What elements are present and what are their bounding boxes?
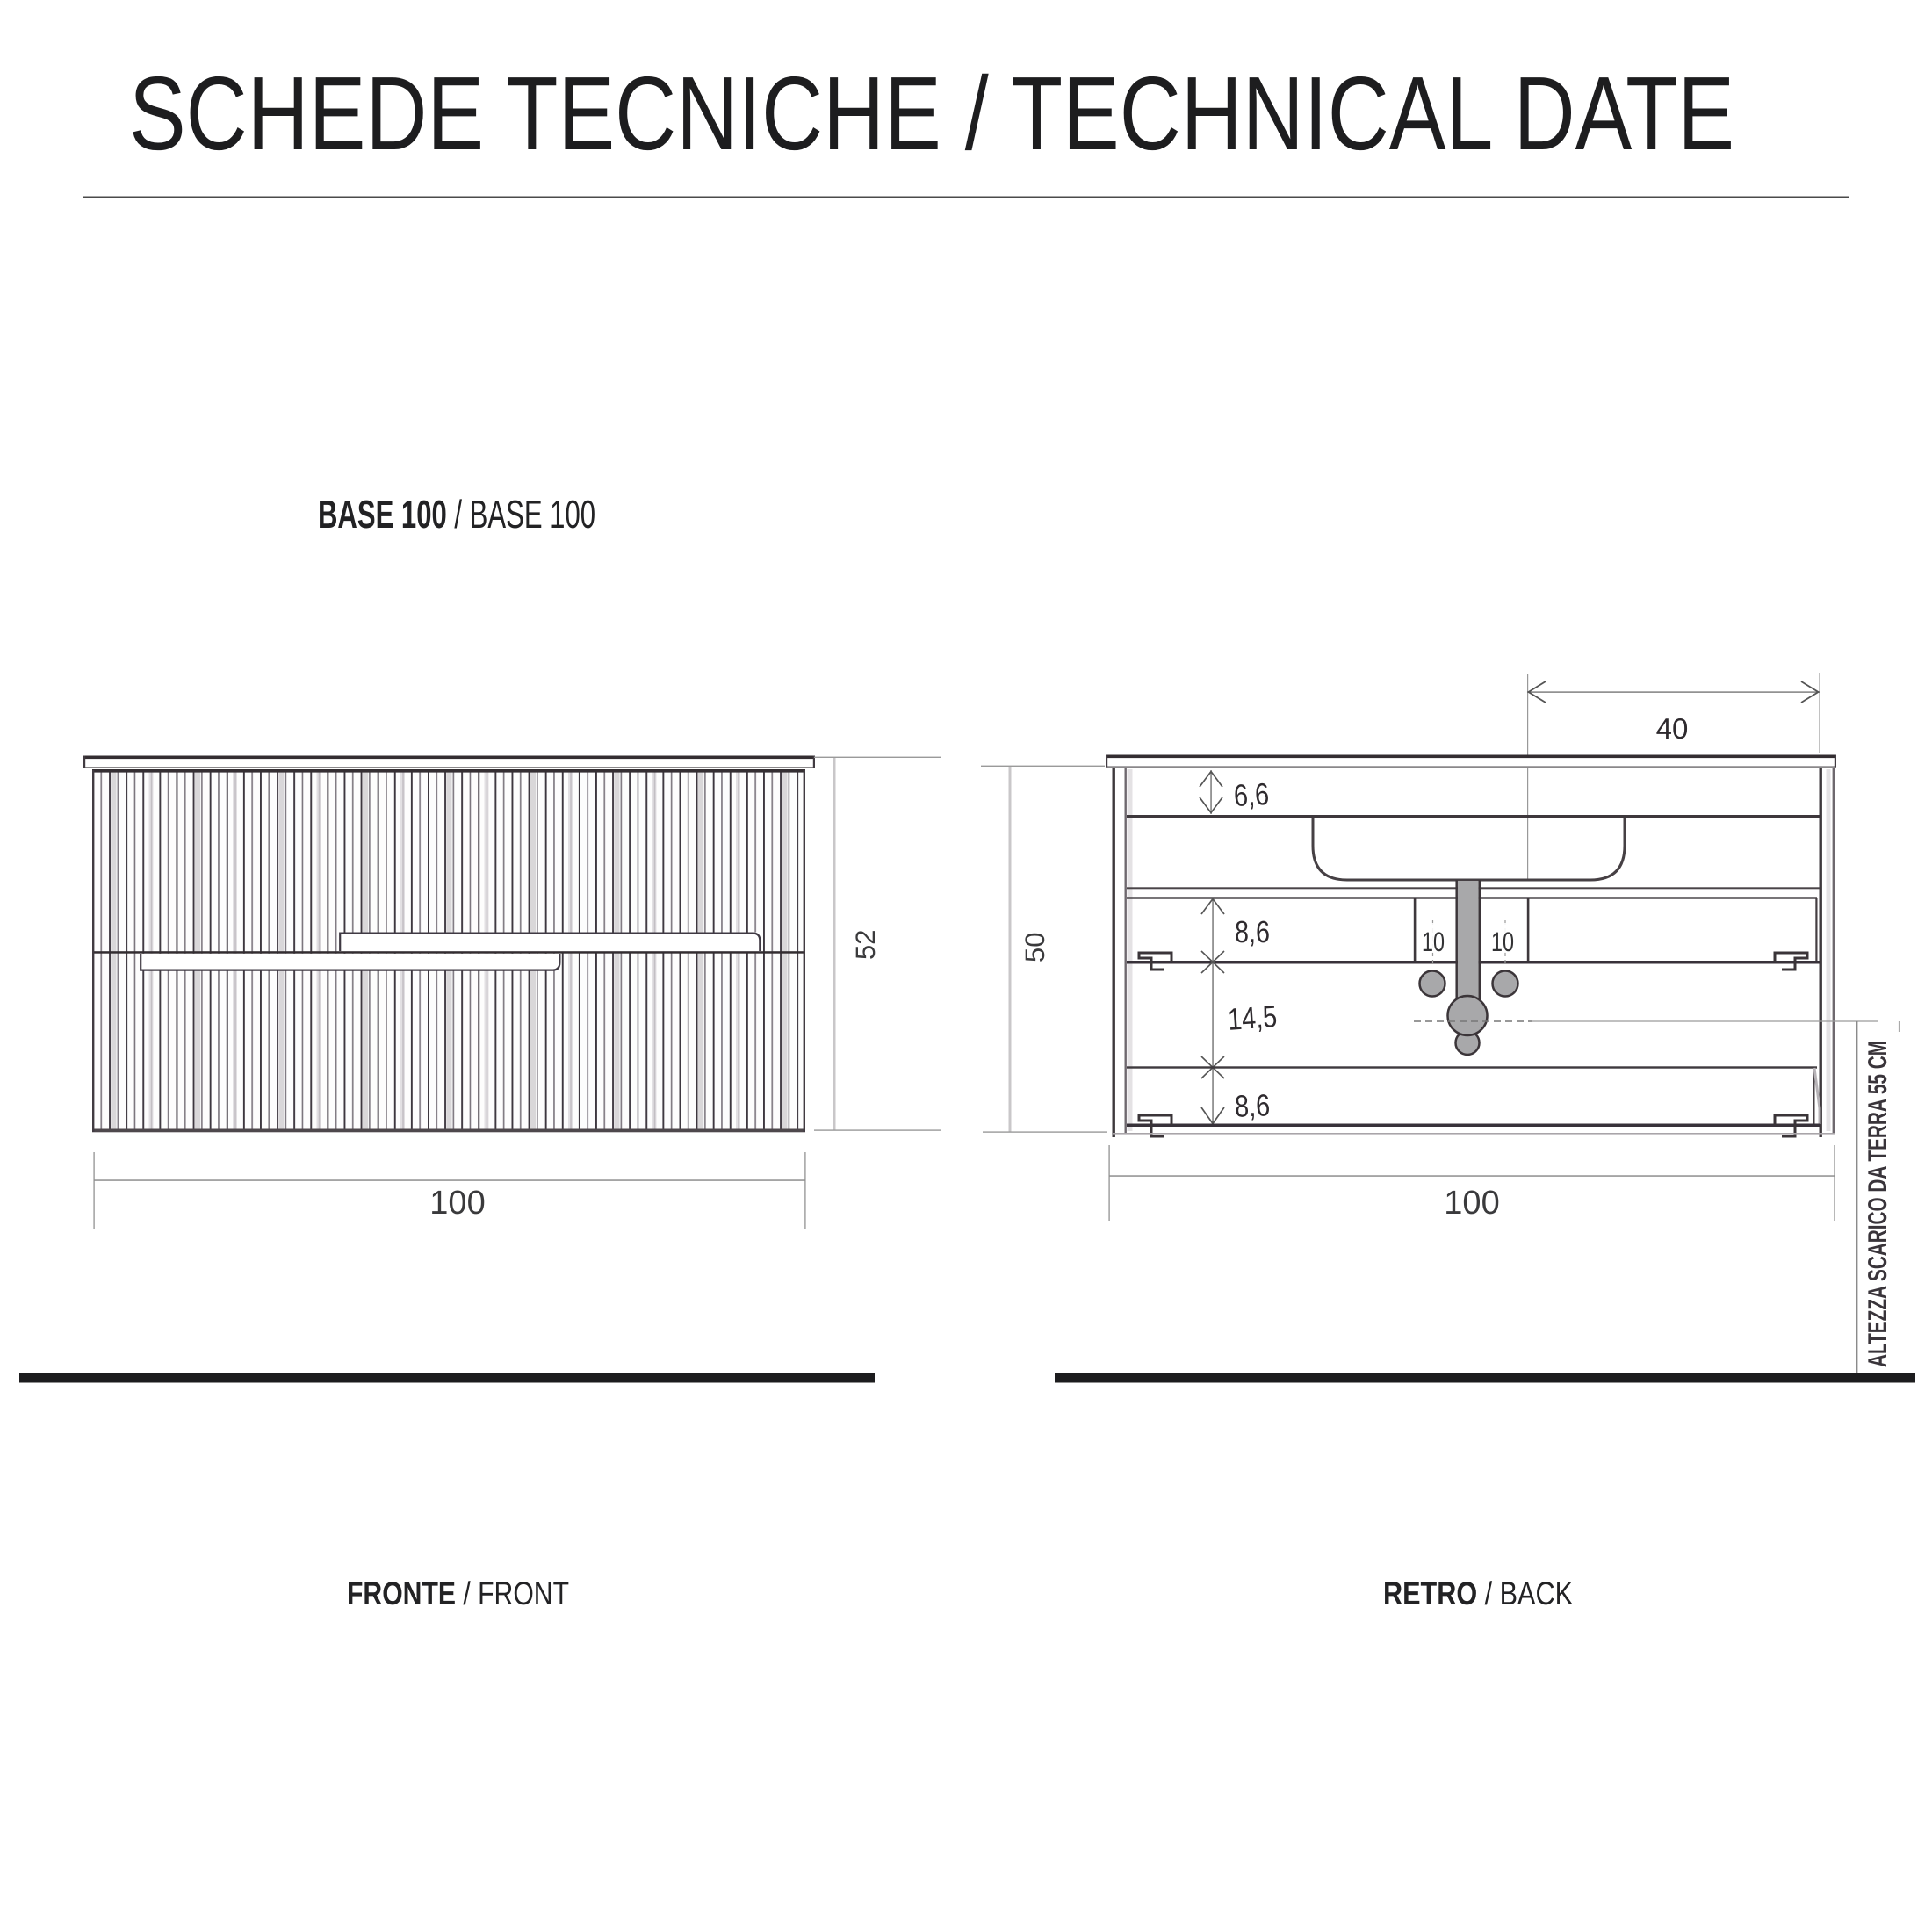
svg-text:50: 50 [1020, 933, 1050, 962]
svg-text:10: 10 [1422, 926, 1445, 957]
svg-text:RETRO / BACK: RETRO / BACK [1383, 1575, 1573, 1611]
svg-text:100: 100 [429, 1185, 485, 1222]
svg-text:SCHEDE TECNICHE / TECHNICAL DA: SCHEDE TECNICHE / TECHNICAL DATE [129, 55, 1734, 172]
svg-text:40: 40 [1656, 712, 1689, 745]
svg-text:BASE 100 / BASE 100: BASE 100 / BASE 100 [318, 492, 595, 537]
svg-text:52: 52 [850, 930, 881, 960]
svg-text:FRONTE / FRONT: FRONTE / FRONT [347, 1575, 569, 1611]
svg-text:10: 10 [1491, 926, 1514, 957]
svg-text:8,6: 8,6 [1235, 915, 1270, 949]
svg-text:ALTEZZA SCARICO DA TERRA 55 CM: ALTEZZA SCARICO DA TERRA 55 CM [1864, 1041, 1892, 1367]
svg-text:6,6: 6,6 [1233, 777, 1270, 813]
svg-text:14,5: 14,5 [1227, 999, 1279, 1037]
svg-text:8,6: 8,6 [1234, 1088, 1270, 1123]
svg-text:100: 100 [1444, 1185, 1499, 1222]
